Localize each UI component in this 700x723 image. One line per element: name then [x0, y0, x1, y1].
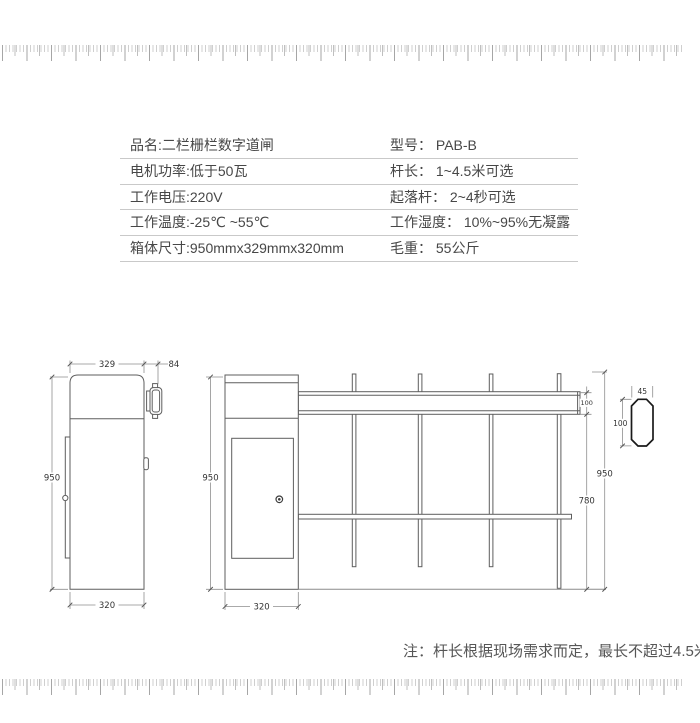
- spec-cell-left: 箱体尺寸:950mmx329mmx320mm: [120, 236, 390, 261]
- film-ruler-bottom: [2, 679, 682, 696]
- spec-cell-left: 工作电压:220V: [120, 185, 390, 210]
- dim-label-section-height: 100: [613, 419, 628, 428]
- product-spec-sheet: 品名:二栏栅栏数字道闸 型号： PAB-B 电机功率:低于50瓦 杆长： 1~4…: [0, 0, 700, 723]
- spec-row: 工作温度:-25℃ ~55℃ 工作湿度： 10%~95%无凝露: [120, 210, 578, 236]
- spec-cell-right: 工作湿度： 10%~95%无凝露: [390, 210, 578, 235]
- spec-row: 品名:二栏栅栏数字道闸 型号： PAB-B: [120, 133, 578, 159]
- dim-label-total-height: 950: [597, 470, 613, 480]
- spec-table: 品名:二栏栅栏数字道闸 型号： PAB-B 电机功率:低于50瓦 杆长： 1~4…: [120, 133, 578, 262]
- spec-cell-left: 品名:二栏栅栏数字道闸: [120, 133, 390, 158]
- technical-drawings: 329 84 950 320 950 320 100 780 950 45 10…: [0, 355, 700, 623]
- dim-label-side-height: 950: [44, 474, 60, 484]
- front-view: [206, 372, 607, 610]
- spec-row: 工作电压:220V 起落杆： 2~4秒可选: [120, 185, 578, 211]
- dim-label-section-width: 45: [638, 387, 648, 396]
- dim-label-arm-height: 100: [580, 399, 592, 407]
- spec-cell-right: 型号： PAB-B: [390, 133, 578, 158]
- spec-cell-left: 电机功率:低于50瓦: [120, 159, 390, 184]
- dim-label-side-depth: 320: [99, 601, 115, 611]
- note-text: 注：杆长根据现场需求而定，最长不超过4.5米: [403, 640, 700, 661]
- dim-label-side-top-width: 329: [99, 360, 115, 370]
- spec-row: 电机功率:低于50瓦 杆长： 1~4.5米可选: [120, 159, 578, 185]
- dim-label-side-bracket: 84: [169, 360, 180, 370]
- dim-label-front-height: 950: [202, 474, 218, 484]
- spec-row: 箱体尺寸:950mmx329mmx320mm 毛重： 55公斤: [120, 236, 578, 262]
- dim-label-fence-height: 780: [579, 497, 595, 507]
- spec-cell-right: 起落杆： 2~4秒可选: [390, 185, 578, 210]
- film-ruler-top: [2, 45, 682, 62]
- side-view: [50, 361, 168, 610]
- spec-cell-left: 工作温度:-25℃ ~55℃: [120, 210, 390, 235]
- spec-cell-right: 杆长： 1~4.5米可选: [390, 159, 578, 184]
- spec-cell-right: 毛重： 55公斤: [390, 236, 578, 261]
- cross-section-view: [620, 386, 653, 446]
- dim-label-front-width: 320: [253, 602, 269, 612]
